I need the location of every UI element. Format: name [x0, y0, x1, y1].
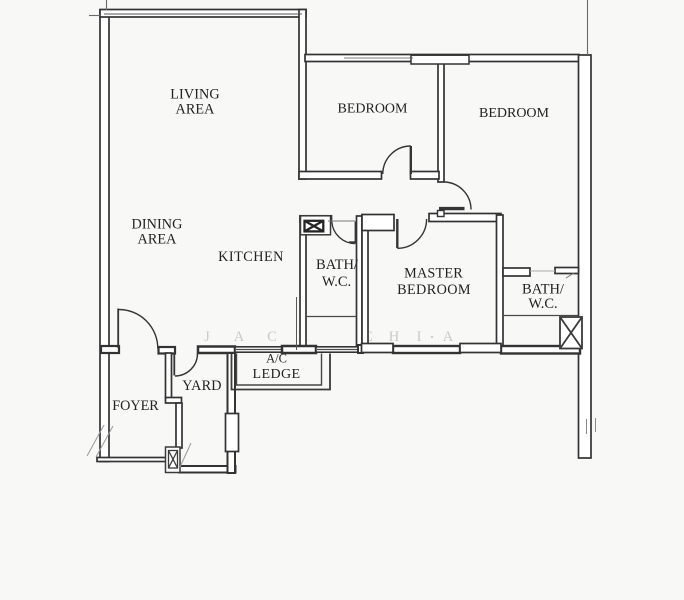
svg-text:KITCHEN: KITCHEN — [218, 249, 284, 265]
svg-text:DINING: DINING — [131, 217, 182, 233]
svg-text:AREA: AREA — [175, 102, 215, 118]
svg-text:BEDROOM: BEDROOM — [479, 106, 550, 121]
svg-text:FOYER: FOYER — [112, 398, 159, 414]
svg-text:C: C — [267, 329, 277, 345]
svg-text:BEDROOM: BEDROOM — [337, 102, 408, 117]
svg-text:H: H — [389, 329, 400, 345]
svg-text:BATH/: BATH/ — [316, 257, 359, 273]
svg-text:MASTER: MASTER — [404, 266, 463, 282]
svg-text:A/C: A/C — [266, 352, 287, 366]
svg-text:LIVING: LIVING — [170, 87, 219, 103]
svg-text:YARD: YARD — [182, 378, 221, 394]
svg-text:LEDGE: LEDGE — [253, 367, 301, 382]
svg-text:AREA: AREA — [137, 232, 177, 248]
svg-text:W.C.: W.C. — [528, 296, 557, 312]
svg-text:A: A — [443, 329, 454, 345]
svg-text:J: J — [204, 329, 210, 345]
svg-text:W.C.: W.C. — [322, 274, 351, 290]
svg-text:I: I — [417, 329, 422, 345]
svg-text:BEDROOM: BEDROOM — [397, 282, 471, 298]
svg-text:A: A — [234, 329, 245, 345]
